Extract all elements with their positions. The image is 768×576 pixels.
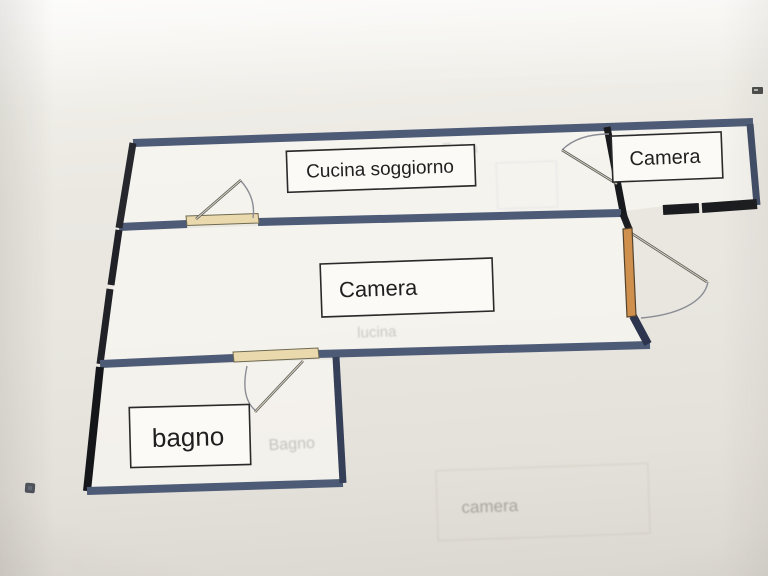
label-box-bagno: bagno — [129, 404, 251, 467]
wall-divider-left — [119, 224, 187, 227]
paper-speck — [25, 483, 36, 494]
label-text-bagno: bagno — [151, 421, 224, 453]
floor-plan-photo: Entra lucina Bagno camera — [0, 0, 768, 576]
door-leaf-camera-main-core — [631, 233, 707, 282]
label-box-cucina-soggiorno: Cucina soggiorno — [286, 145, 475, 193]
label-box-camera-main: Camera — [320, 258, 494, 317]
floor-plan-drawing: Entra lucina Bagno camera — [0, 0, 768, 576]
label-text-camera-main: Camera — [339, 275, 419, 303]
label-text-camera-top: Camera — [629, 146, 702, 171]
wall-black-bar-left — [663, 208, 699, 210]
door-arc-camera-main — [641, 282, 708, 318]
wall-black-bar-right — [702, 204, 757, 208]
corner-mark — [752, 87, 763, 94]
ghost-text-bagno: Bagno — [268, 435, 315, 454]
label-box-camera-top: Camera — [611, 132, 723, 182]
ghost-text-camera: camera — [461, 496, 519, 517]
ghost-text-lucina: lucina — [357, 323, 397, 341]
